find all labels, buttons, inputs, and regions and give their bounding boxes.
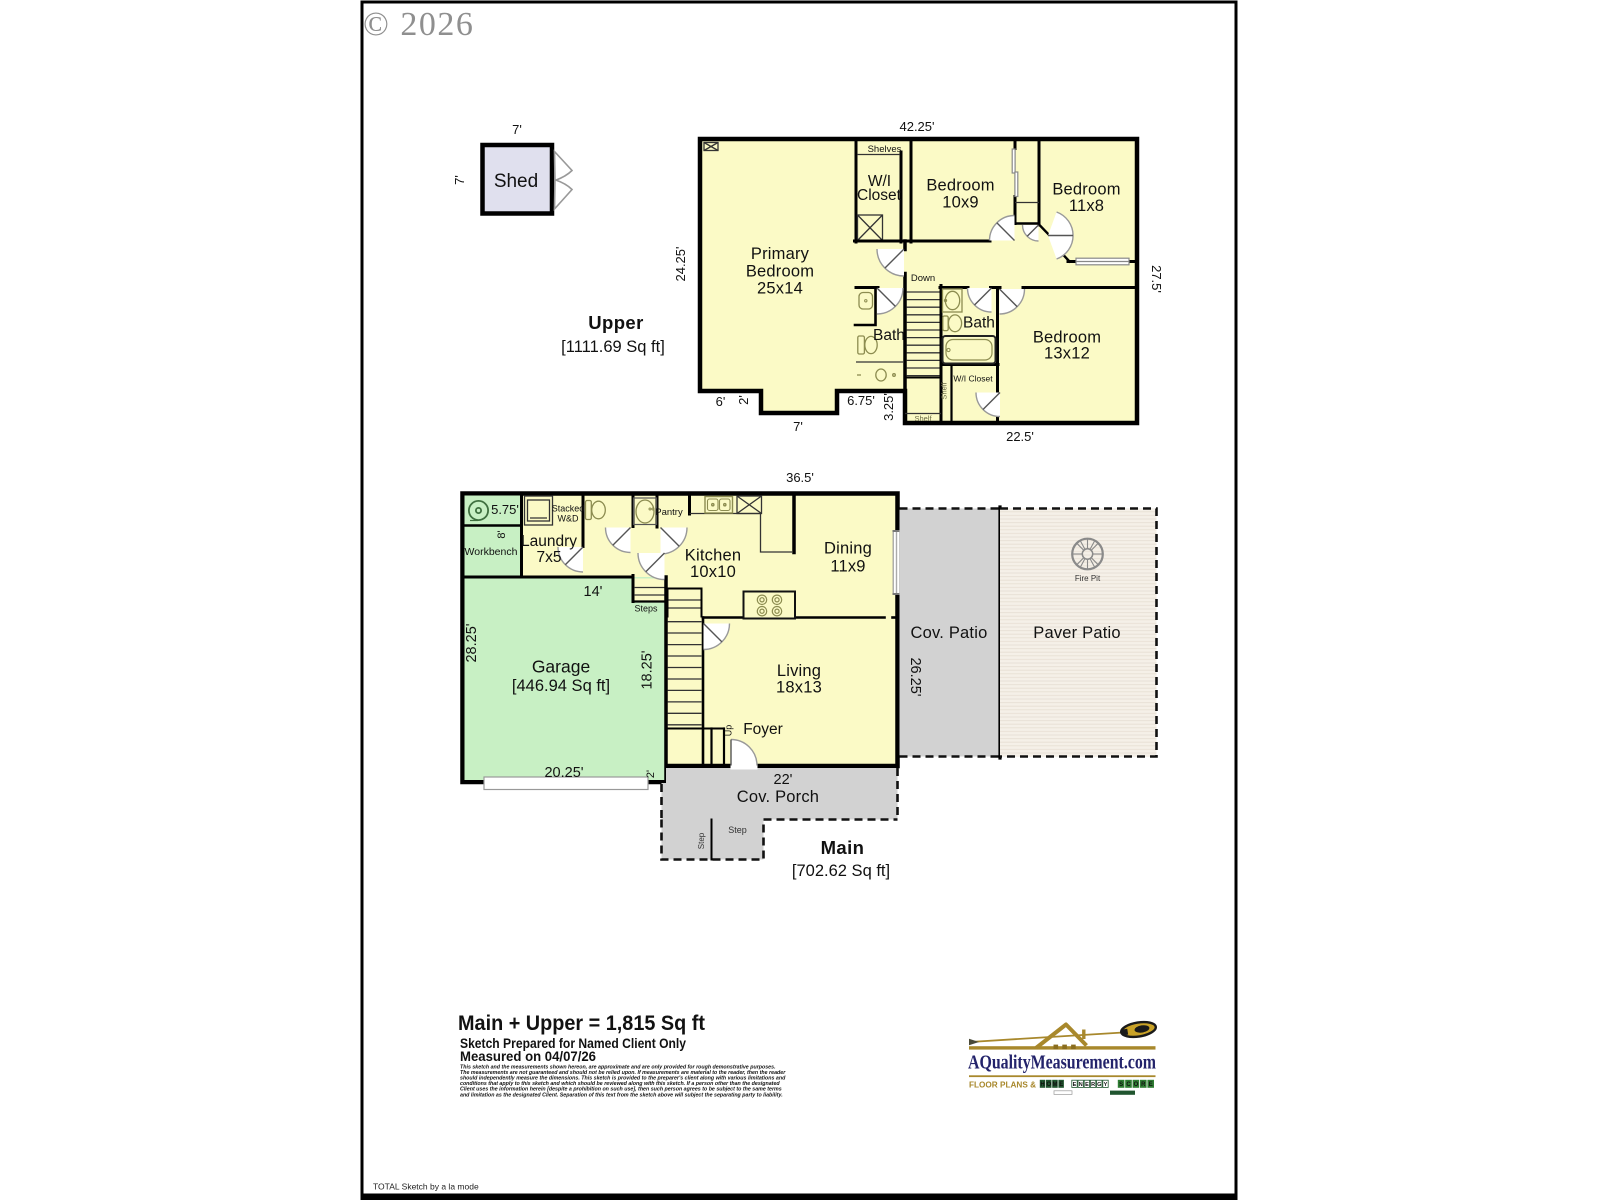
svg-text:27.5': 27.5': [1149, 265, 1164, 293]
svg-text:Primary: Primary: [751, 245, 810, 263]
svg-text:H: H: [1040, 1082, 1044, 1088]
svg-text:11x8: 11x8: [1069, 197, 1104, 215]
svg-text:E: E: [1059, 1082, 1063, 1088]
svg-text:Cov. Porch: Cov. Porch: [737, 788, 819, 806]
svg-text:Down: Down: [911, 273, 935, 284]
svg-text:Y: Y: [1104, 1082, 1108, 1088]
svg-text:Dining: Dining: [824, 540, 872, 558]
svg-text:Bath: Bath: [963, 315, 995, 332]
svg-text:R: R: [1141, 1082, 1146, 1088]
svg-text:7': 7': [793, 419, 803, 434]
svg-text:42.25': 42.25': [899, 119, 934, 134]
svg-text:E: E: [1073, 1082, 1077, 1088]
svg-text:G: G: [1097, 1082, 1101, 1088]
svg-text:TOTAL Sketch by a la mode: TOTAL Sketch by a la mode: [373, 1182, 479, 1192]
svg-text:Kitchen: Kitchen: [685, 547, 741, 565]
svg-text:36.5': 36.5': [786, 470, 814, 485]
svg-text:Step: Step: [728, 825, 747, 835]
svg-text:Laundry: Laundry: [521, 533, 577, 550]
svg-text:2': 2': [645, 770, 657, 778]
svg-text:22.5': 22.5': [1006, 429, 1034, 444]
svg-text:C: C: [1126, 1082, 1131, 1088]
svg-text:2': 2': [736, 395, 751, 405]
svg-text:6.75': 6.75': [847, 393, 875, 408]
svg-text:[1111.69 Sq ft]: [1111.69 Sq ft]: [561, 338, 665, 356]
svg-text:24.25': 24.25': [673, 246, 688, 281]
svg-text:Workbench: Workbench: [465, 546, 518, 558]
svg-text:E: E: [1085, 1082, 1089, 1088]
svg-text:Bedroom: Bedroom: [746, 263, 814, 281]
svg-text:S: S: [1119, 1082, 1123, 1088]
svg-text:N: N: [1079, 1082, 1083, 1088]
svg-text:Steps: Steps: [634, 604, 658, 614]
svg-text:Up: Up: [724, 725, 734, 737]
svg-text:Shelves: Shelves: [868, 144, 902, 155]
svg-text:Step: Step: [697, 832, 706, 849]
svg-text:Garage: Garage: [532, 657, 590, 677]
svg-text:Main + Upper = 1,815 Sq ft: Main + Upper = 1,815 Sq ft: [458, 1012, 705, 1035]
svg-text:© 2026: © 2026: [363, 6, 474, 43]
svg-text:20.25': 20.25': [544, 765, 583, 781]
svg-text:8': 8': [496, 530, 508, 538]
svg-text:Bedroom: Bedroom: [1052, 181, 1120, 199]
svg-text:W&D: W&D: [558, 514, 579, 524]
svg-text:and limitation as the designat: and limitation as the designated Client.…: [460, 1092, 783, 1098]
svg-text:Bedroom: Bedroom: [926, 177, 994, 195]
svg-text:E: E: [1149, 1082, 1153, 1088]
svg-text:Bath: Bath: [873, 327, 905, 344]
svg-text:Living: Living: [777, 662, 821, 680]
svg-text:FLOOR PLANS &: FLOOR PLANS &: [969, 1080, 1036, 1090]
svg-text:[446.94 Sq ft]: [446.94 Sq ft]: [512, 677, 610, 695]
svg-text:13x12: 13x12: [1044, 345, 1090, 363]
svg-text:Shelf: Shelf: [940, 382, 949, 400]
svg-text:3.25': 3.25': [881, 393, 896, 421]
svg-text:Cov. Patio: Cov. Patio: [911, 624, 988, 642]
svg-text:[702.62 Sq ft]: [702.62 Sq ft]: [792, 862, 890, 880]
svg-text:26.25': 26.25': [907, 657, 923, 696]
svg-text:7': 7': [452, 175, 467, 185]
svg-text:O: O: [1046, 1082, 1051, 1088]
svg-text:6': 6': [716, 394, 726, 409]
svg-text:14': 14': [584, 584, 603, 600]
svg-text:Stacked: Stacked: [552, 504, 585, 514]
svg-text:Main: Main: [821, 837, 865, 858]
svg-text:28.25': 28.25': [464, 623, 480, 662]
svg-text:Shelf: Shelf: [914, 414, 932, 423]
svg-text:11x9: 11x9: [830, 558, 865, 576]
svg-text:18.25': 18.25': [640, 650, 656, 689]
svg-text:Foyer: Foyer: [743, 721, 783, 738]
svg-text:5.75': 5.75': [491, 502, 519, 517]
svg-text:O: O: [1134, 1082, 1139, 1088]
svg-text:Measured on 04/07/26: Measured on 04/07/26: [460, 1049, 596, 1064]
svg-text:25x14: 25x14: [757, 280, 803, 298]
svg-text:7': 7': [512, 122, 522, 137]
svg-text:18x13: 18x13: [776, 679, 822, 697]
svg-text:W/I Closet: W/I Closet: [953, 374, 993, 384]
svg-text:Upper: Upper: [588, 312, 643, 333]
svg-text:Fire Pit: Fire Pit: [1075, 574, 1101, 583]
svg-text:Paver Patio: Paver Patio: [1033, 624, 1121, 642]
svg-text:R: R: [1091, 1082, 1095, 1088]
svg-text:22': 22': [774, 772, 793, 788]
svg-text:Shed: Shed: [494, 171, 538, 192]
svg-text:Pantry: Pantry: [655, 507, 683, 518]
svg-text:M: M: [1053, 1082, 1058, 1088]
svg-text:Closet: Closet: [857, 187, 902, 204]
svg-text:7x5: 7x5: [537, 549, 562, 566]
svg-text:10x9: 10x9: [942, 194, 979, 212]
svg-text:10x10: 10x10: [690, 563, 736, 581]
svg-text:AQualityMeasurement.com: AQualityMeasurement.com: [968, 1052, 1156, 1074]
